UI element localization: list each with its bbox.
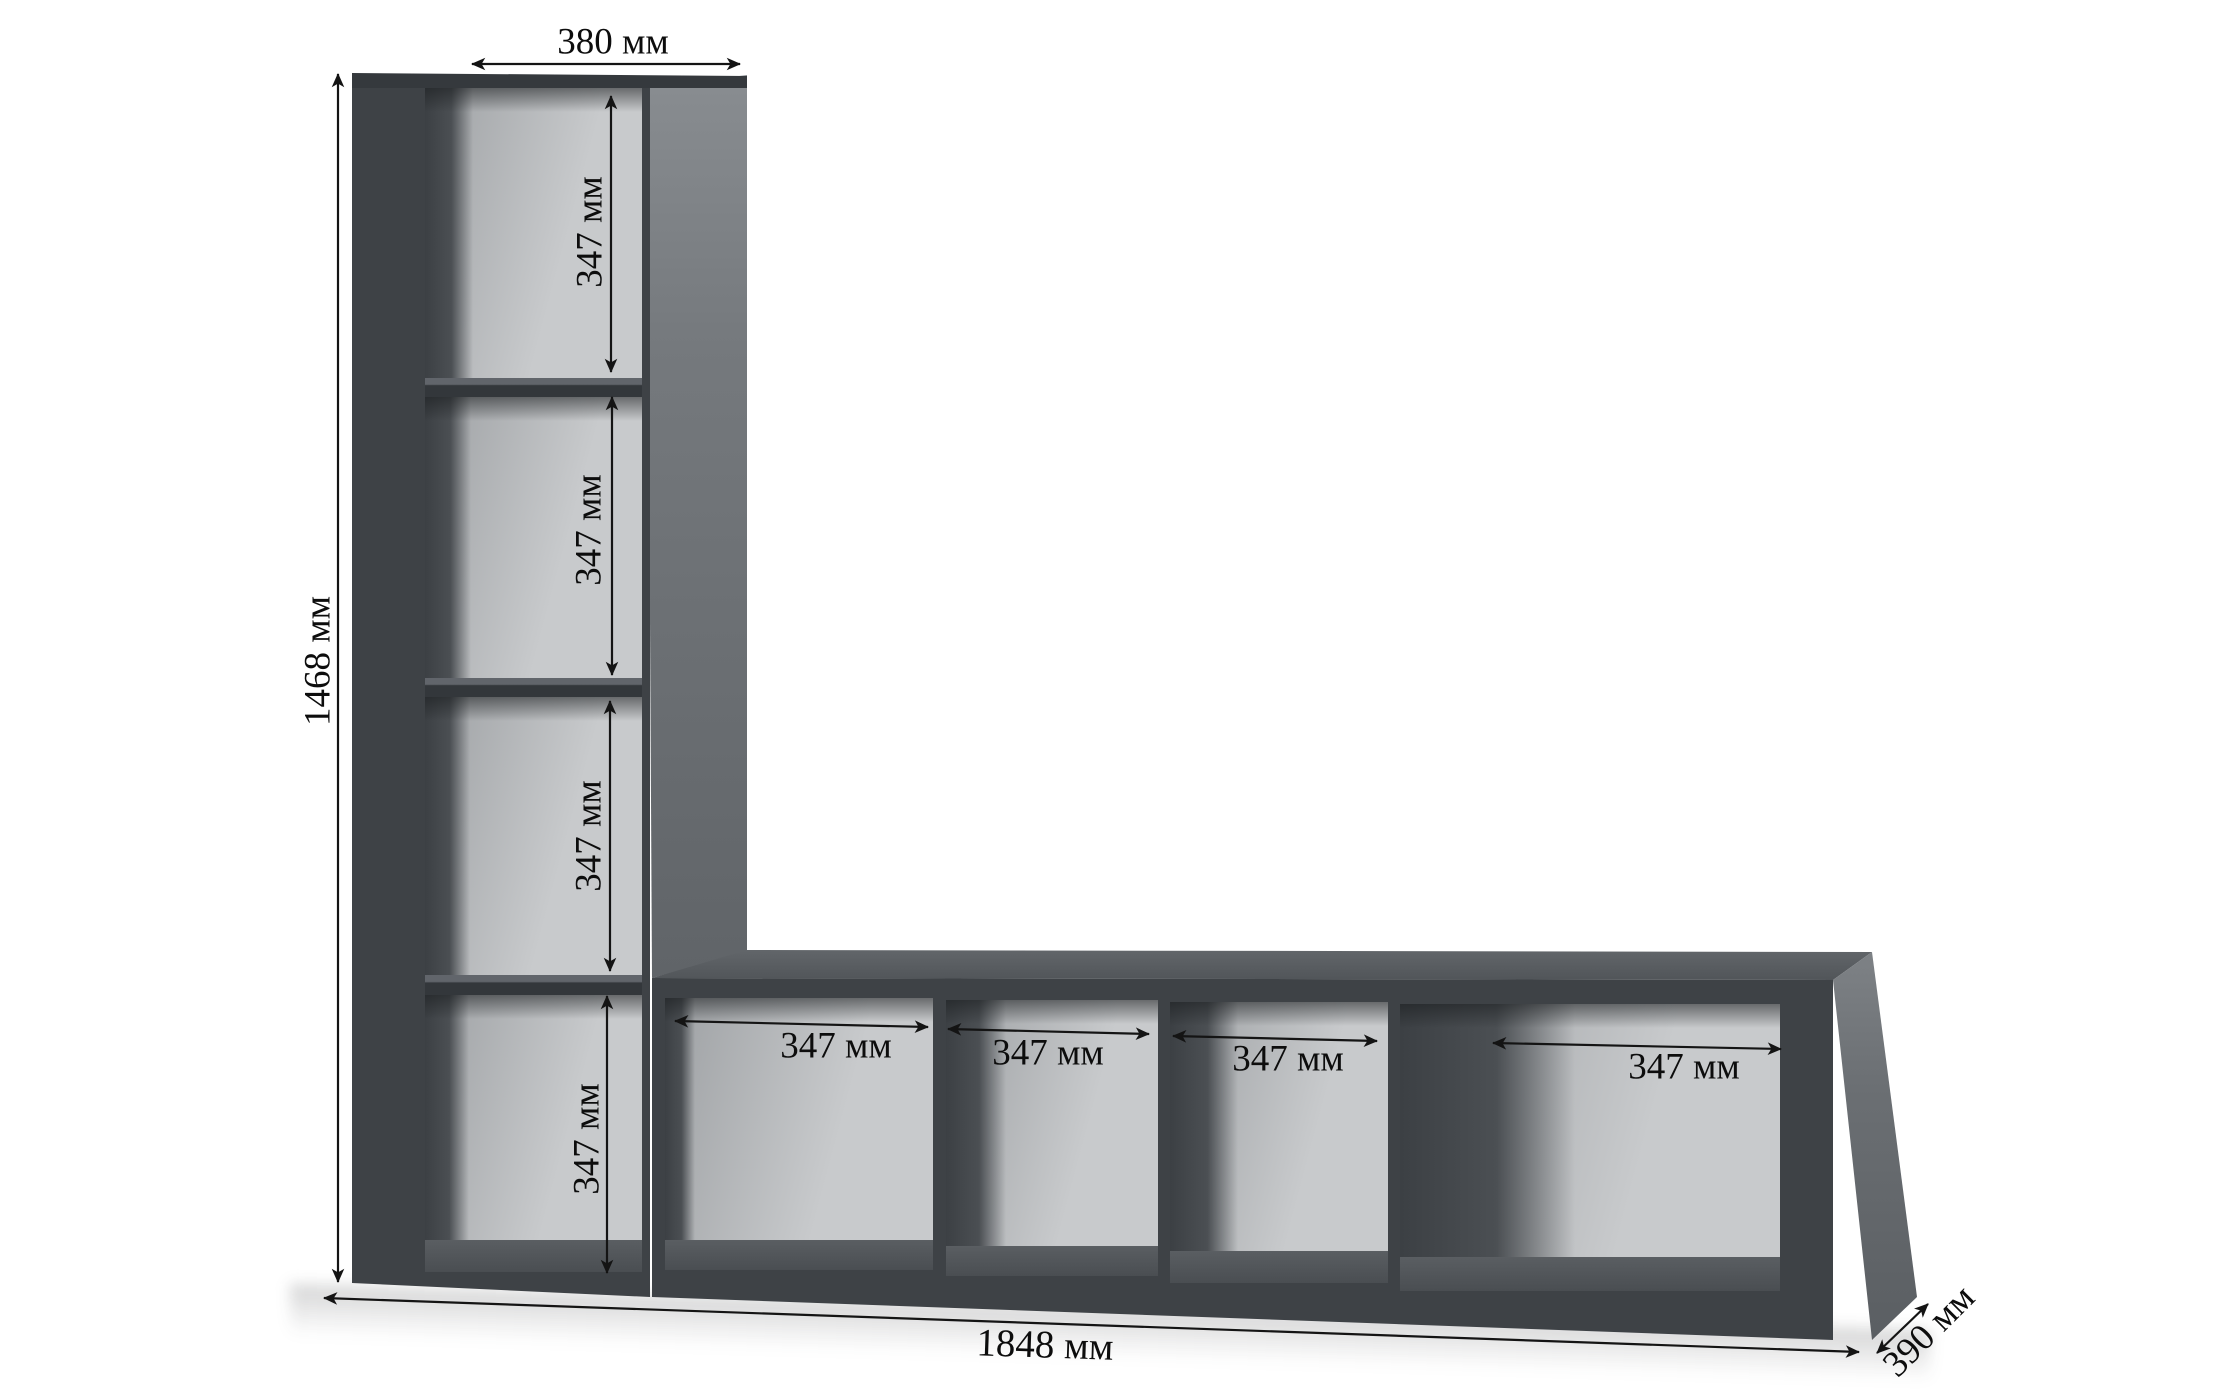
dim-label-tall-cell-1: 347 мм — [572, 176, 609, 288]
dim-label-bottom-cell-3: 347 мм — [1232, 1041, 1344, 1078]
dim-label-total-height: 1468 мм — [300, 596, 337, 726]
dim-label-top-width: 380 мм — [557, 24, 669, 61]
dim-label-tall-cell-4: 347 мм — [569, 1083, 606, 1195]
dim-label-bottom-cell-4: 347 мм — [1628, 1049, 1740, 1086]
dim-label-tall-cell-3: 347 мм — [571, 780, 608, 892]
furniture-dimension-diagram: 380 мм 1468 мм 347 мм 347 мм 347 мм 347 … — [0, 0, 2232, 1395]
dim-label-tall-cell-2: 347 мм — [571, 474, 608, 586]
dim-label-bottom-cell-1: 347 мм — [780, 1028, 892, 1065]
dim-label-total-width: 1848 мм — [976, 1323, 1114, 1367]
dim-label-bottom-cell-2: 347 мм — [992, 1035, 1104, 1072]
